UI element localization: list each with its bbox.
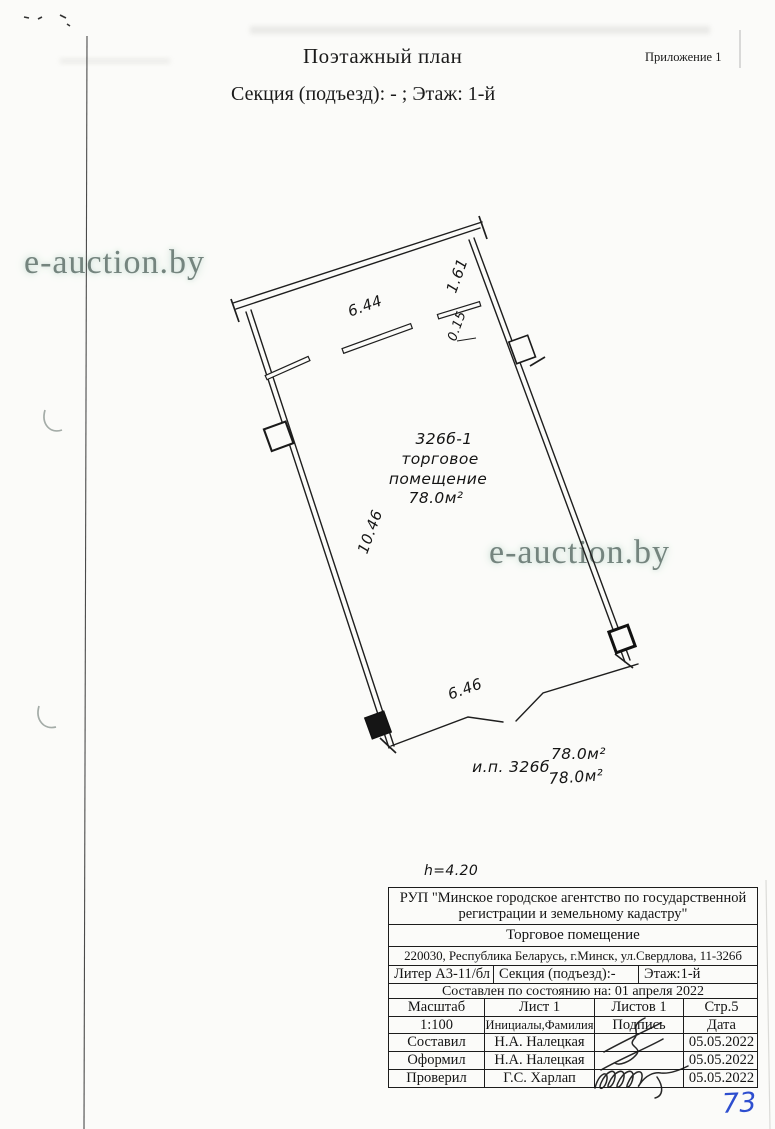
partition-stub-middle (342, 324, 412, 354)
room-number-label: 326б-1 (416, 430, 473, 448)
signature-cell (594, 1070, 683, 1087)
scale-header-cell: Масштаб (389, 999, 484, 1016)
scanned-floor-plan-page: e-auction.by e-auction.by Поэтажный план… (0, 0, 775, 1129)
org-header-cell: РУП "Минское городское агентство по госу… (389, 888, 757, 924)
unit-label: и.п. 326б (472, 758, 550, 776)
role-cell: Оформил (389, 1052, 484, 1069)
signature-cell (594, 1034, 683, 1051)
punch-hole-top (44, 410, 62, 431)
info-table: РУП "Минское городское агентство по госу… (388, 887, 758, 1088)
scan-smudge (250, 26, 710, 34)
page-ref-cell: Стр.5 (683, 999, 759, 1016)
date-cell: 05.05.2022 (683, 1070, 759, 1087)
date-cell: 05.05.2022 (683, 1052, 759, 1069)
partition-stub-left (265, 356, 310, 379)
punch-hole-bottom (38, 706, 56, 728)
handwritten-page-number: 73 (721, 1087, 757, 1120)
name-cell: Н.А. Налецкая (484, 1052, 594, 1069)
unit-area-1: 78.0м² (551, 745, 606, 763)
signature-cell (594, 1052, 683, 1069)
section-floor-subtitle: Секция (подъезд): - ; Этаж: 1-й (231, 83, 495, 106)
partition-leader-line (457, 338, 476, 341)
pen-marks (24, 15, 70, 26)
address-cell: 220030, Республика Беларусь, г.Минск, ул… (389, 947, 757, 965)
sheets-cell: Листов 1 (594, 999, 683, 1016)
partition-stub-right (437, 302, 480, 319)
as-of-cell: Составлен по состоянию на: 01 апреля 202… (389, 984, 757, 1000)
watermark-top: e-auction.by (24, 244, 205, 282)
dimension-ticks (231, 216, 633, 753)
liter-cell: Литер А3-11/бл (389, 966, 493, 983)
top-wall (233, 222, 482, 309)
dim-bottom-label: 6.46 (445, 674, 484, 703)
left-wall (246, 310, 394, 748)
appendix-label: Приложение 1 (645, 50, 721, 65)
watermark-middle: e-auction.by (489, 534, 670, 572)
dim-right-upper-label: 1.61 (443, 256, 472, 295)
dim-top-label: 6.44 (345, 291, 384, 320)
window-symbol-right-upper (509, 335, 536, 363)
ceiling-height-label: h=4.20 (424, 863, 478, 879)
role-cell: Проверил (389, 1070, 484, 1087)
scale-value-cell: 1:100 (389, 1017, 484, 1034)
margin-line (84, 36, 87, 1129)
dim-partition-label: 0.15 (445, 309, 470, 343)
right-wall (469, 238, 630, 662)
page-title: Поэтажный план (303, 44, 462, 69)
floor-cell: Этаж:1-й (638, 966, 759, 983)
object-type-cell: Торговое помещение (389, 925, 757, 946)
room-type-line1: торговое (401, 450, 478, 468)
section-cell: Секция (подъезд):- (493, 966, 638, 983)
window-symbol-left-upper (264, 422, 293, 451)
room-type-line2: помещение (389, 470, 487, 488)
scan-smudge (60, 58, 170, 64)
date-cell: 05.05.2022 (683, 1034, 759, 1051)
window-symbol-right-lower (609, 625, 635, 653)
page-edge-mark (766, 880, 770, 1129)
dim-left-label: 10.46 (354, 507, 386, 556)
sign-header-cell: Подпись (594, 1017, 683, 1034)
role-cell: Составил (389, 1034, 484, 1051)
bottom-boundary (391, 664, 638, 746)
pier-symbol-left-lower (365, 711, 391, 739)
unit-area-2: 78.0м² (548, 766, 604, 788)
room-area-label: 78.0м² (409, 489, 464, 507)
sheet-cell: Лист 1 (484, 999, 594, 1016)
name-cell: Н.А. Налецкая (484, 1034, 594, 1051)
name-header-cell: Инициалы,Фамилия (484, 1017, 594, 1034)
name-cell: Г.С. Харлап (484, 1070, 594, 1087)
date-header-cell: Дата (683, 1017, 759, 1034)
